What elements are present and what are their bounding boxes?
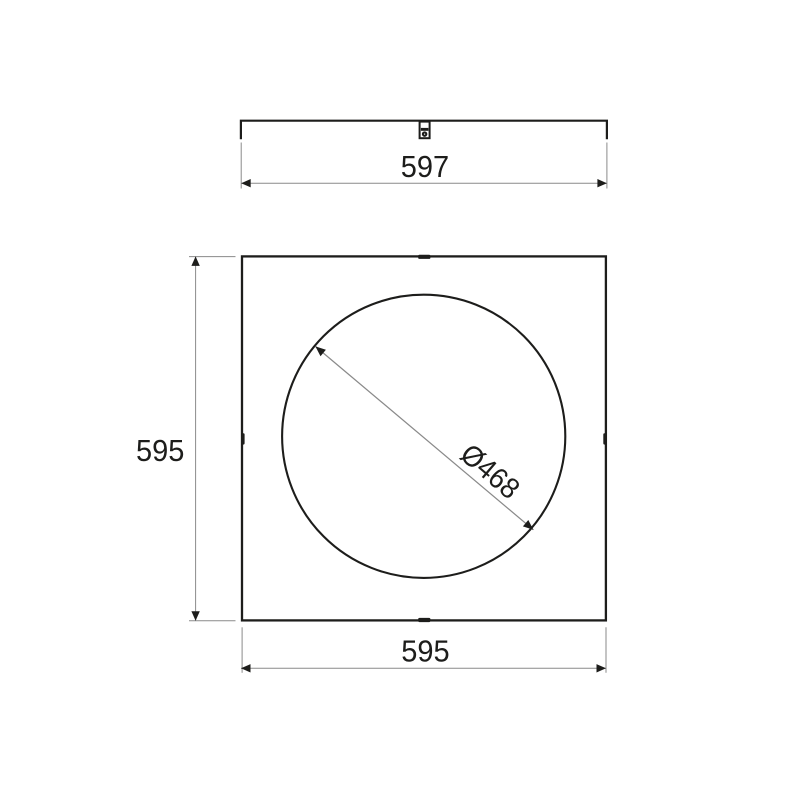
svg-text:597: 597 bbox=[401, 149, 449, 184]
svg-text:595: 595 bbox=[136, 433, 184, 468]
svg-text:595: 595 bbox=[401, 634, 449, 669]
